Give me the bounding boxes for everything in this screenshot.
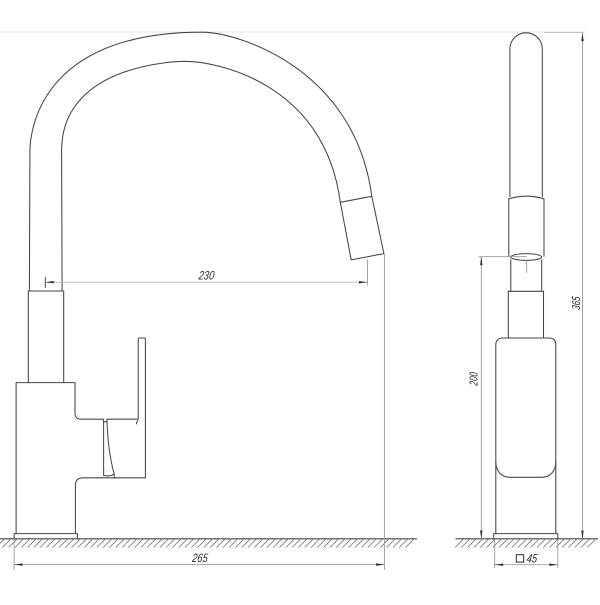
- svg-text:200: 200: [468, 371, 481, 387]
- svg-text:365: 365: [571, 295, 584, 310]
- svg-text:230: 230: [197, 269, 215, 282]
- svg-text:265: 265: [190, 552, 209, 565]
- svg-text:45: 45: [526, 552, 539, 565]
